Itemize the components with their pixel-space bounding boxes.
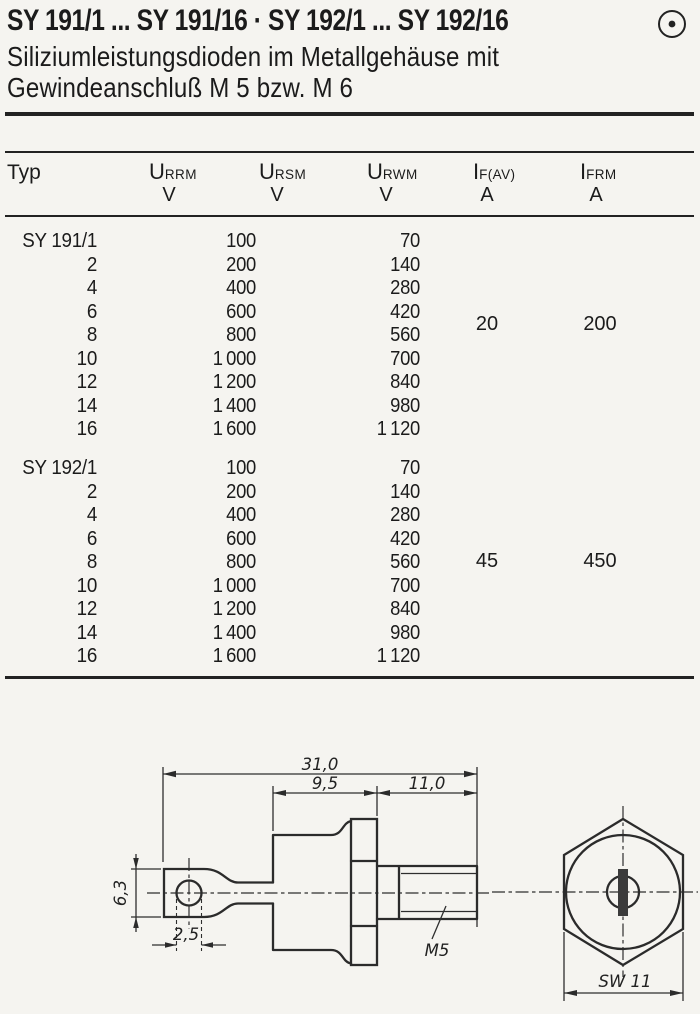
type-cell: 4 bbox=[6, 504, 97, 528]
dim-label-overall: 31,0 bbox=[302, 755, 339, 774]
type-cell: 10 bbox=[6, 575, 97, 599]
table-row: 6600420 bbox=[0, 528, 700, 552]
urrm-cell: 400 bbox=[155, 277, 256, 301]
type-cell: 6 bbox=[6, 528, 97, 552]
table-row: 121 200840 bbox=[0, 598, 700, 622]
col-header-ifav: IF(AV) bbox=[473, 159, 515, 185]
urrm-cell: 1 400 bbox=[155, 622, 256, 646]
urwm-cell: 420 bbox=[315, 528, 420, 552]
type-cell: 2 bbox=[6, 254, 97, 278]
type-cell: 16 bbox=[6, 645, 97, 669]
urwm-cell: 840 bbox=[315, 371, 420, 395]
type-cell: 12 bbox=[6, 371, 97, 395]
type-cell: 16 bbox=[6, 418, 97, 442]
dim-label-lug-height: 6,3 bbox=[111, 880, 130, 906]
col-header-urwm: URWM bbox=[367, 159, 418, 185]
urwm-cell: 1 120 bbox=[315, 645, 420, 669]
table-row: SY 191/110070 bbox=[0, 230, 700, 254]
urrm-cell: 1 600 bbox=[155, 645, 256, 669]
urwm-cell: 840 bbox=[315, 598, 420, 622]
screwdriver-slot bbox=[618, 869, 628, 916]
type-cell: 4 bbox=[6, 277, 97, 301]
subtitle-line2: Gewindeanschluß M 5 bzw. M 6 bbox=[7, 72, 353, 104]
divider-thick bbox=[5, 112, 694, 116]
table-bottom-rule bbox=[5, 676, 694, 679]
unit-urrm: V bbox=[152, 184, 186, 207]
urrm-cell: 600 bbox=[155, 528, 256, 552]
table-row: 4400280 bbox=[0, 277, 700, 301]
urwm-cell: 140 bbox=[315, 481, 420, 505]
urrm-cell: 1 000 bbox=[155, 575, 256, 599]
table-row: 101 000700 bbox=[0, 348, 700, 372]
table-row: 4400280 bbox=[0, 504, 700, 528]
urrm-cell: 600 bbox=[155, 301, 256, 325]
col-header-urrm: URRM bbox=[149, 159, 197, 185]
table-row: 161 6001 120 bbox=[0, 645, 700, 669]
wrench-size-label: SW 11 bbox=[598, 972, 651, 991]
urrm-cell: 200 bbox=[155, 481, 256, 505]
table-row: 2200140 bbox=[0, 254, 700, 278]
dim-label-stud: 11,0 bbox=[409, 774, 446, 793]
datasheet-page: SY 191/1 ... SY 191/16 · SY 192/1 ... SY… bbox=[0, 0, 700, 1014]
ifav-value-sy192: 45 bbox=[452, 550, 522, 573]
unit-urwm: V bbox=[369, 184, 403, 207]
urrm-cell: 1 200 bbox=[155, 371, 256, 395]
urrm-cell: 400 bbox=[155, 504, 256, 528]
page-title: SY 191/1 ... SY 191/16 · SY 192/1 ... SY… bbox=[7, 4, 508, 38]
type-cell: 10 bbox=[6, 348, 97, 372]
hex-flange-side bbox=[351, 819, 377, 965]
diode-case bbox=[273, 821, 351, 964]
type-cell: 6 bbox=[6, 301, 97, 325]
col-header-typ: Typ bbox=[7, 161, 41, 185]
type-cell: 2 bbox=[6, 481, 97, 505]
dimension-drawing: 31,0 9,5 11,0 6,3 2,5 bbox=[0, 740, 700, 1014]
urwm-cell: 70 bbox=[315, 230, 420, 254]
type-cell: 8 bbox=[6, 551, 97, 575]
urwm-cell: 980 bbox=[315, 622, 420, 646]
type-cell: 12 bbox=[6, 598, 97, 622]
table-row: 121 200840 bbox=[0, 371, 700, 395]
urwm-cell: 140 bbox=[315, 254, 420, 278]
dim-label-hole: 2,5 bbox=[173, 925, 199, 944]
header-underline bbox=[5, 215, 694, 217]
urwm-cell: 700 bbox=[315, 575, 420, 599]
table-row: 101 000700 bbox=[0, 575, 700, 599]
urwm-cell: 980 bbox=[315, 395, 420, 419]
divider-thin bbox=[5, 151, 694, 153]
unit-ifav: A bbox=[470, 184, 504, 207]
urwm-cell: 280 bbox=[315, 504, 420, 528]
dim-label-body: 9,5 bbox=[312, 774, 338, 793]
unit-ursm: V bbox=[260, 184, 294, 207]
urrm-cell: 100 bbox=[155, 230, 256, 254]
table-row: 141 400980 bbox=[0, 395, 700, 419]
urrm-cell: 1 400 bbox=[155, 395, 256, 419]
urwm-cell: 700 bbox=[315, 348, 420, 372]
circled-dot-icon bbox=[655, 8, 689, 42]
urwm-cell: 560 bbox=[315, 324, 420, 348]
type-cell: 14 bbox=[6, 395, 97, 419]
type-cell: SY 191/1 bbox=[6, 230, 97, 254]
urrm-cell: 800 bbox=[155, 551, 256, 575]
urrm-cell: 800 bbox=[155, 324, 256, 348]
type-cell: 14 bbox=[6, 622, 97, 646]
table-row: 161 6001 120 bbox=[0, 418, 700, 442]
ifrm-value-sy192: 450 bbox=[565, 550, 635, 573]
urrm-cell: 1 200 bbox=[155, 598, 256, 622]
table-row: 141 400980 bbox=[0, 622, 700, 646]
type-cell: 8 bbox=[6, 324, 97, 348]
urrm-cell: 1 000 bbox=[155, 348, 256, 372]
urwm-cell: 560 bbox=[315, 551, 420, 575]
thread-label: M5 bbox=[425, 941, 450, 960]
ifav-value-sy191: 20 bbox=[452, 313, 522, 336]
urwm-cell: 1 120 bbox=[315, 418, 420, 442]
type-cell: SY 192/1 bbox=[6, 457, 97, 481]
subtitle-line1: Siliziumleistungsdioden im Metallgehäuse… bbox=[7, 41, 499, 73]
table-row: SY 192/110070 bbox=[0, 457, 700, 481]
col-header-ursm: URSM bbox=[259, 159, 306, 185]
urrm-cell: 1 600 bbox=[155, 418, 256, 442]
col-header-ifrm: IFRM bbox=[580, 159, 617, 185]
side-view: 31,0 9,5 11,0 6,3 2,5 bbox=[111, 755, 489, 965]
urrm-cell: 200 bbox=[155, 254, 256, 278]
ifrm-value-sy191: 200 bbox=[565, 313, 635, 336]
urwm-cell: 70 bbox=[315, 457, 420, 481]
urwm-cell: 280 bbox=[315, 277, 420, 301]
urwm-cell: 420 bbox=[315, 301, 420, 325]
unit-ifrm: A bbox=[579, 184, 613, 207]
table-row: 2200140 bbox=[0, 481, 700, 505]
urrm-cell: 100 bbox=[155, 457, 256, 481]
end-view: SW 11 bbox=[492, 806, 698, 1001]
